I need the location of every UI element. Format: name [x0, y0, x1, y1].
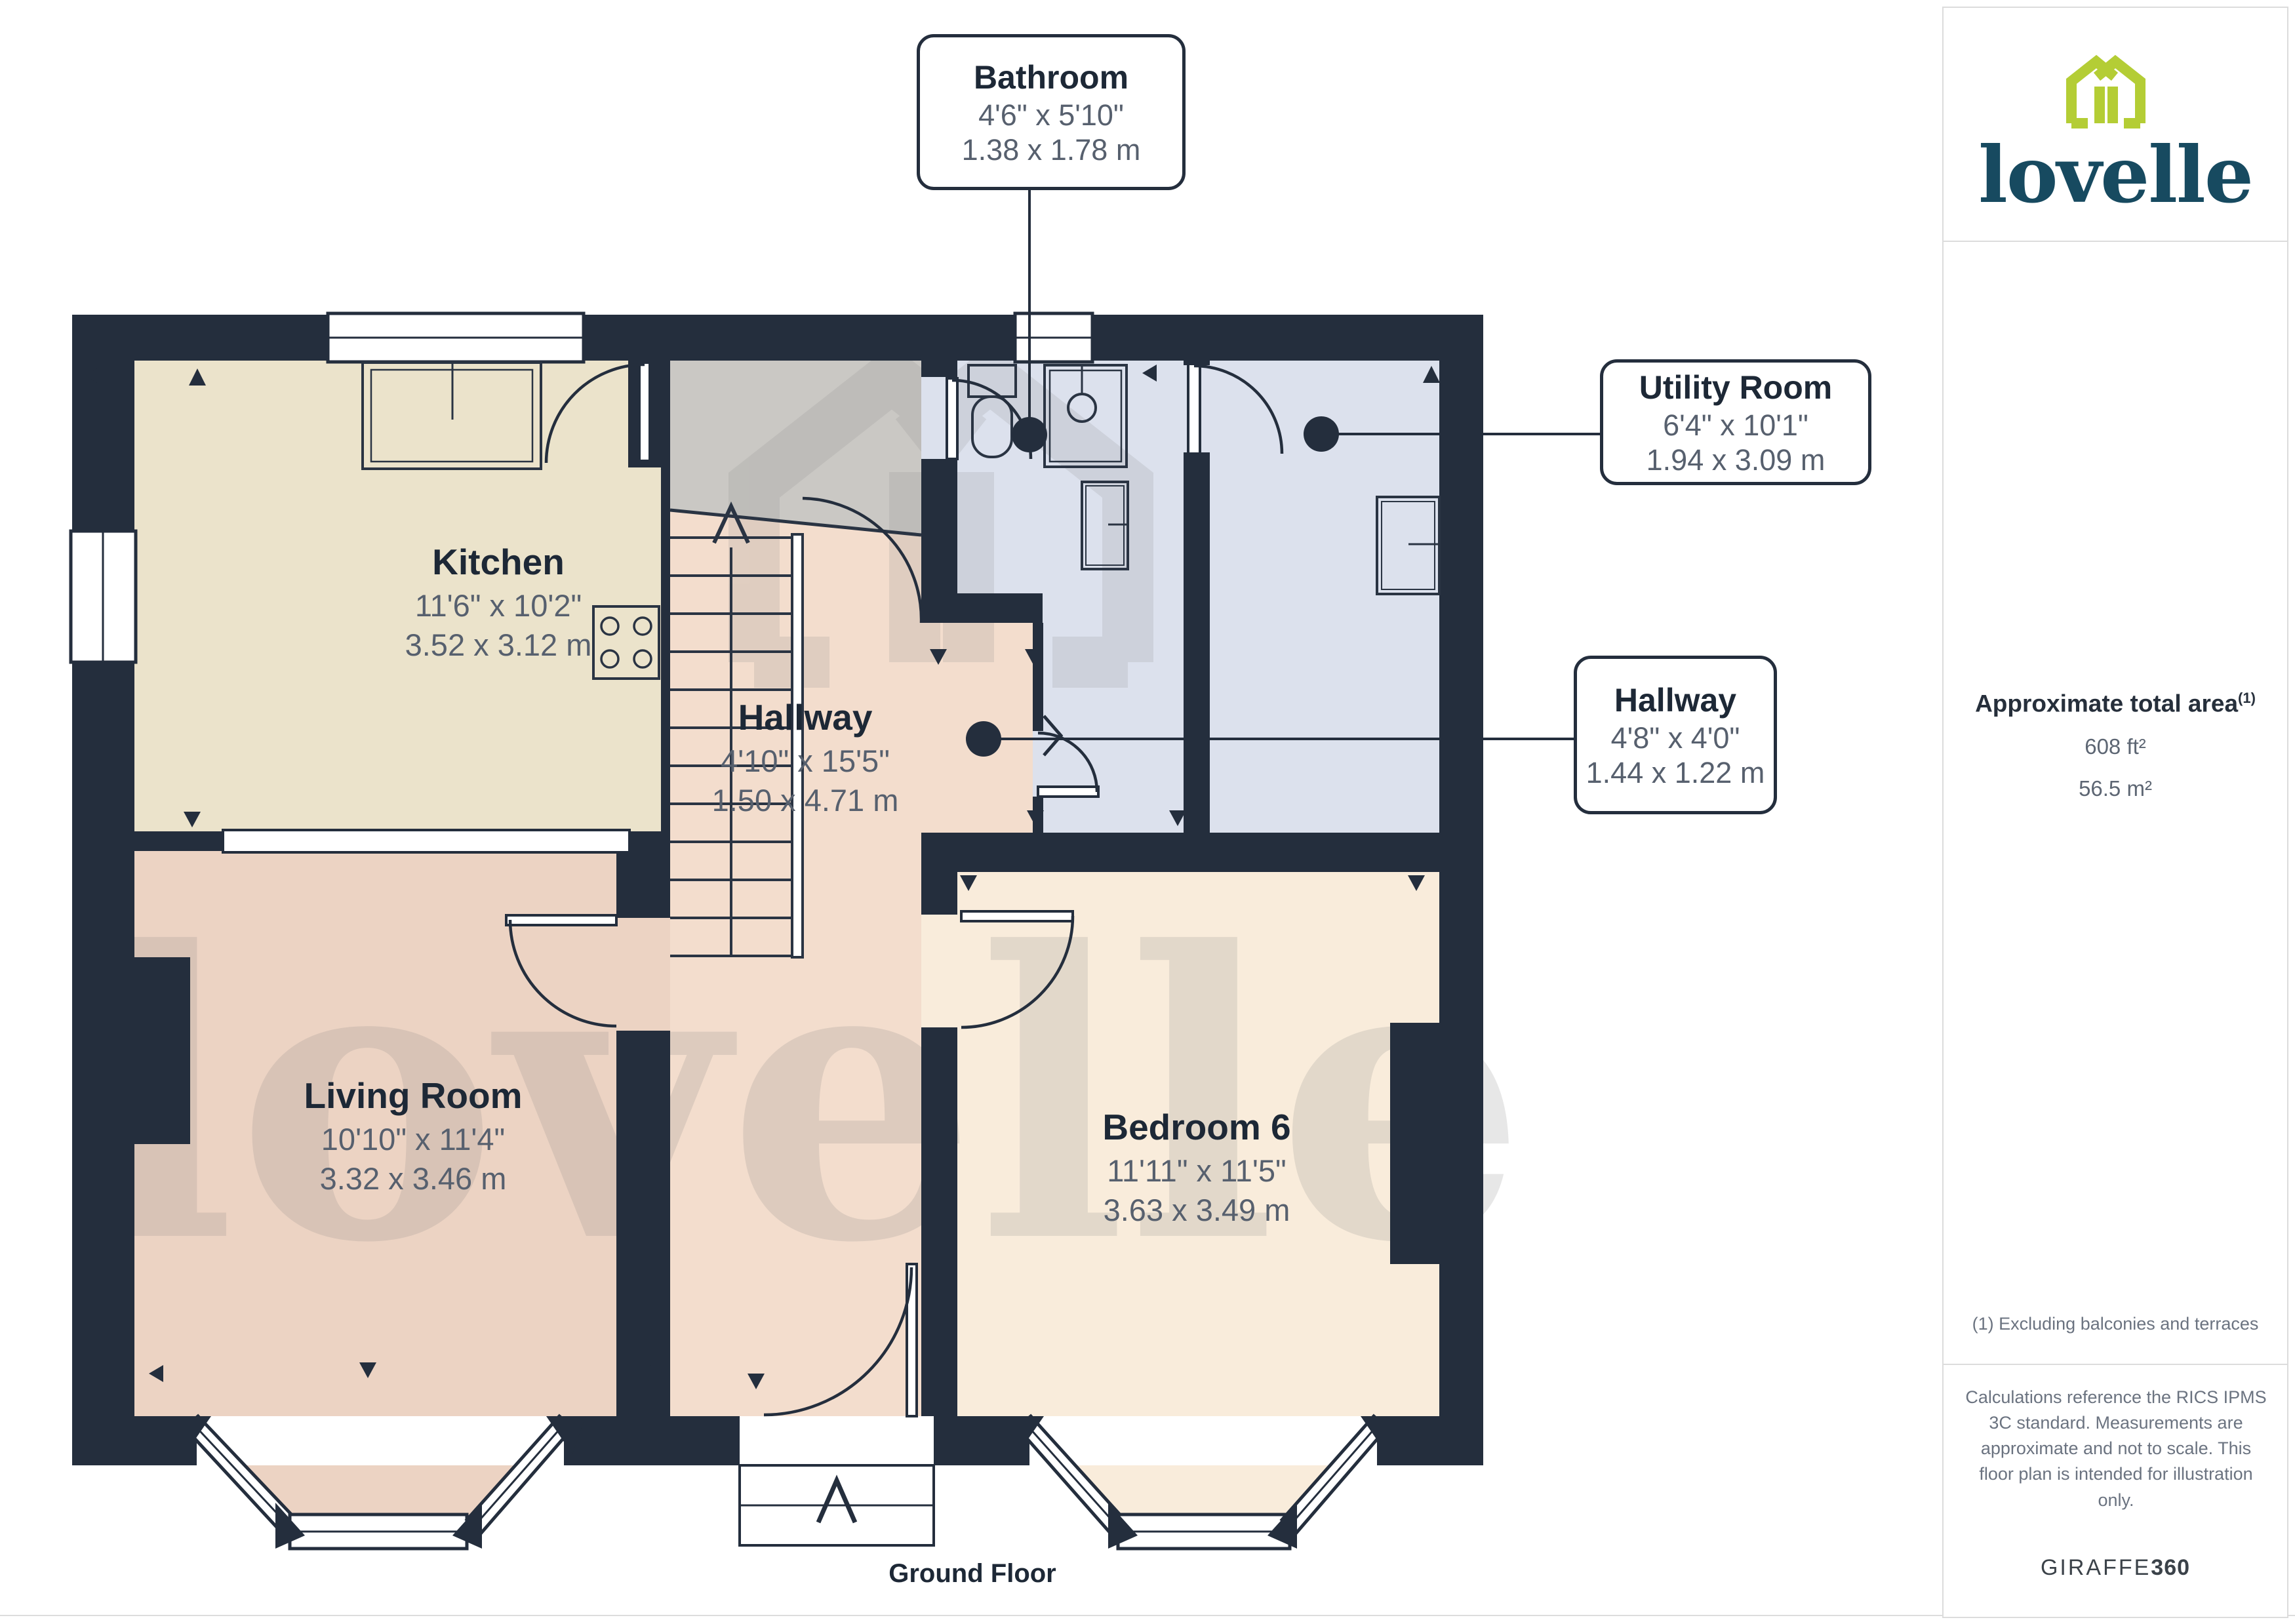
- sidebar: lovelle Approximate total area(1) 608 ft…: [1942, 7, 2288, 1618]
- room-title: Bedroom 6: [1102, 1104, 1290, 1151]
- bathroom-callout: Bathroom 4'6" x 5'10" 1.38 x 1.78 m: [917, 34, 1186, 190]
- provider-suffix: 360: [2151, 1555, 2190, 1580]
- kitchen-door-leaf: [639, 363, 650, 461]
- floor-title: Ground Floor: [888, 1559, 1056, 1589]
- callout-title: Utility Room: [1603, 367, 1868, 408]
- living-door-leaf: [506, 915, 616, 925]
- hallway-callout: Hallway 4'8" x 4'0" 1.44 x 1.22 m: [1574, 656, 1777, 814]
- floorplan-page: lovelle: [0, 0, 2295, 1624]
- callout-imperial: 4'6" x 5'10": [920, 98, 1182, 132]
- room-title: Kitchen: [405, 539, 592, 586]
- logo-wordmark: lovelle: [1978, 129, 2252, 220]
- callout-imperial: 6'4" x 10'1": [1603, 408, 1868, 443]
- utility-door-leaf: [1188, 364, 1200, 454]
- callout-title: Bathroom: [920, 57, 1182, 98]
- area-title: Approximate total area(1): [1944, 690, 2287, 717]
- bay-gap-bedroom: [1029, 1416, 1377, 1465]
- living-room-label: Living Room 10'10" x 11'4" 3.32 x 3.46 m: [304, 1073, 522, 1198]
- camera-dot-bathroom: [1012, 417, 1047, 452]
- callout-imperial: 4'8" x 4'0": [1577, 721, 1774, 755]
- doorway-living: [616, 918, 670, 1031]
- chimney-living: [134, 957, 190, 1144]
- camera-dot-utility: [1304, 416, 1339, 452]
- wall-top: [72, 315, 1483, 361]
- logo-block: lovelle: [1944, 8, 2287, 242]
- area-metric: 56.5 m²: [1944, 776, 2287, 801]
- bedroom-6-label: Bedroom 6 11'11" x 11'5" 3.63 x 3.49 m: [1102, 1104, 1290, 1230]
- bathroom-upper-door-leaf: [947, 378, 957, 459]
- utility-room-callout: Utility Room 6'4" x 10'1" 1.94 x 3.09 m: [1600, 359, 1871, 485]
- bay-gap-living: [197, 1416, 564, 1465]
- internal-opening-kitchen-living: [223, 830, 629, 852]
- kitchen-label: Kitchen 11'6" x 10'2" 3.52 x 3.12 m: [405, 539, 592, 665]
- watermark-text: lovelle: [87, 867, 1527, 1329]
- callout-title: Hallway: [1577, 680, 1774, 721]
- wall-bathroom-stub: [957, 593, 1043, 623]
- disclaimer: Calculations reference the RICS IPMS 3C …: [1963, 1385, 2269, 1513]
- bedroom-door-leaf: [961, 911, 1073, 921]
- callout-metric: 1.94 x 3.09 m: [1603, 443, 1868, 477]
- camera-dot-hallway: [966, 721, 1001, 757]
- callout-metric: 1.38 x 1.78 m: [920, 132, 1182, 167]
- wall-right: [1439, 315, 1483, 1465]
- wall-bedroom-top: [921, 833, 1483, 872]
- doorway-bedroom: [921, 915, 957, 1027]
- room-metric: 1.50 x 4.71 m: [712, 781, 899, 820]
- room-imperial: 4'10" x 15'5": [712, 742, 899, 781]
- callout-metric: 1.44 x 1.22 m: [1577, 755, 1774, 790]
- area-block: Approximate total area(1) 608 ft² 56.5 m…: [1944, 690, 2287, 801]
- room-title: Living Room: [304, 1073, 522, 1120]
- wall-left: [72, 315, 134, 1465]
- front-door-leaf: [907, 1264, 917, 1416]
- room-title: Hallway: [712, 694, 899, 742]
- room-metric: 3.52 x 3.12 m: [405, 625, 592, 665]
- bathroom-lower-door-leaf: [1038, 787, 1098, 797]
- room-imperial: 11'11" x 11'5": [1102, 1151, 1290, 1191]
- area-footnote: (1) Excluding balconies and terraces: [1944, 1284, 2287, 1365]
- room-metric: 3.63 x 3.49 m: [1102, 1191, 1290, 1230]
- room-imperial: 11'6" x 10'2": [405, 586, 592, 625]
- hallway-label: Hallway 4'10" x 15'5" 1.50 x 4.71 m: [712, 694, 899, 820]
- room-metric: 3.32 x 3.46 m: [304, 1159, 522, 1198]
- provider-name: GIRAFFE: [2041, 1555, 2151, 1580]
- room-imperial: 10'10" x 11'4": [304, 1120, 522, 1159]
- chimney-bedroom: [1390, 1023, 1439, 1264]
- front-door-gap: [740, 1416, 934, 1465]
- area-imperial: 608 ft²: [1944, 734, 2287, 759]
- provider-mark: GIRAFFE360: [1944, 1555, 2287, 1581]
